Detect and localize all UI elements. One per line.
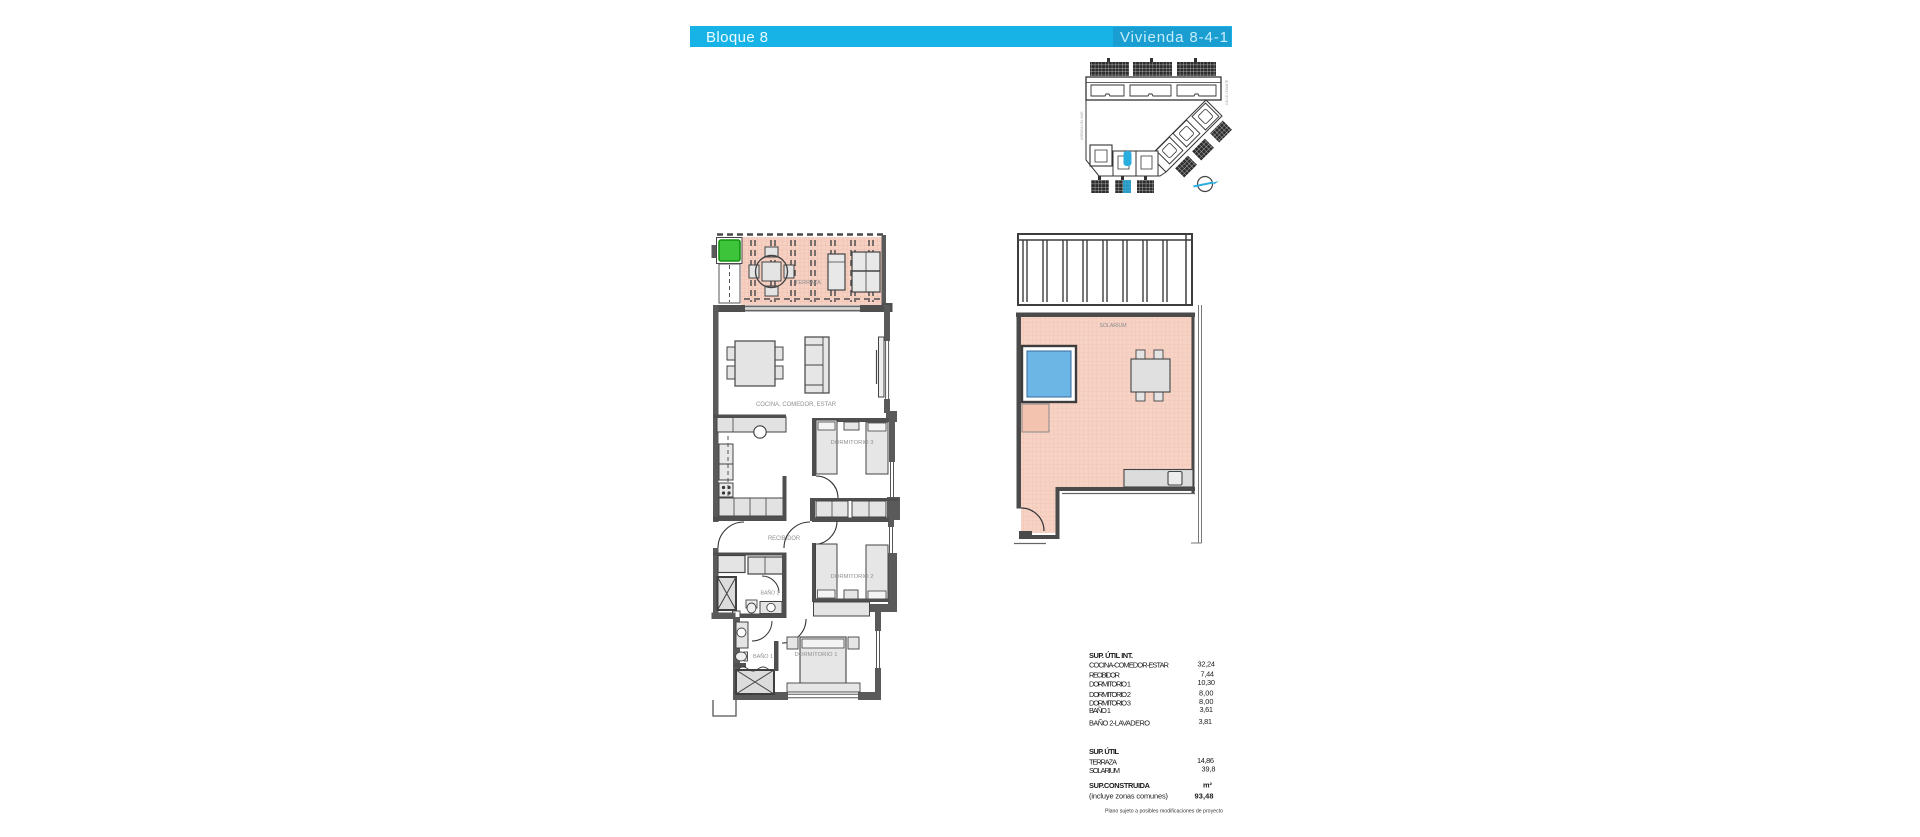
svg-text:DORMITORIO 2: DORMITORIO 2	[831, 574, 874, 580]
svg-text:BAÑO 2: BAÑO 2	[761, 590, 780, 597]
svg-text:BAÑO 2-LAVADERO: BAÑO 2-LAVADERO	[1089, 719, 1150, 728]
svg-text:m²: m²	[1203, 781, 1213, 790]
svg-text:DORMITORIO 3: DORMITORIO 3	[831, 440, 874, 446]
svg-text:TERRAZA: TERRAZA	[795, 280, 821, 286]
svg-text:SUP. ÚTIL INT.: SUP. ÚTIL INT.	[1089, 651, 1133, 660]
svg-text:Vivienda 8-4-1: Vivienda 8-4-1	[1120, 29, 1228, 46]
svg-text:14,86: 14,86	[1197, 756, 1214, 765]
svg-text:COCINA-COMEDOR-ESTAR: COCINA-COMEDOR-ESTAR	[1089, 661, 1169, 670]
svg-text:3,61: 3,61	[1200, 705, 1214, 714]
svg-text:7,44: 7,44	[1201, 669, 1215, 678]
svg-text:DORMITORIO 1: DORMITORIO 1	[1089, 679, 1131, 688]
svg-text:SUP.CONSTRUIDA: SUP.CONSTRUIDA	[1089, 781, 1151, 790]
svg-text:39,8: 39,8	[1202, 765, 1216, 774]
svg-text:93,48: 93,48	[1195, 791, 1214, 800]
svg-text:COCINA, COMEDOR, ESTAR: COCINA, COMEDOR, ESTAR	[756, 401, 837, 408]
svg-text:AVENIDA DEL MAR: AVENIDA DEL MAR	[1080, 111, 1084, 140]
svg-text:Plano sujeto a posibles modifi: Plano sujeto a posibles modificaciones d…	[1105, 808, 1223, 814]
svg-text:32,24: 32,24	[1198, 659, 1216, 668]
svg-text:CALLE LEVANTE: CALLE LEVANTE	[1225, 80, 1229, 105]
svg-text:DORMITORIO 1: DORMITORIO 1	[795, 652, 838, 658]
svg-text:BAÑO 1: BAÑO 1	[1089, 706, 1111, 715]
svg-text:10,30: 10,30	[1198, 678, 1216, 687]
svg-text:SOLARIUM: SOLARIUM	[1089, 766, 1120, 775]
svg-text:SUP. ÚTIL: SUP. ÚTIL	[1089, 747, 1119, 756]
svg-text:3,81: 3,81	[1199, 717, 1213, 726]
svg-text:SOLARIUM: SOLARIUM	[1100, 323, 1127, 329]
svg-text:(incluye zonas comunes): (incluye zonas comunes)	[1089, 792, 1168, 801]
svg-text:Bloque 8: Bloque 8	[706, 29, 768, 46]
svg-text:RECIBIDOR: RECIBIDOR	[768, 535, 800, 542]
svg-text:BAÑO 1: BAÑO 1	[753, 653, 773, 660]
